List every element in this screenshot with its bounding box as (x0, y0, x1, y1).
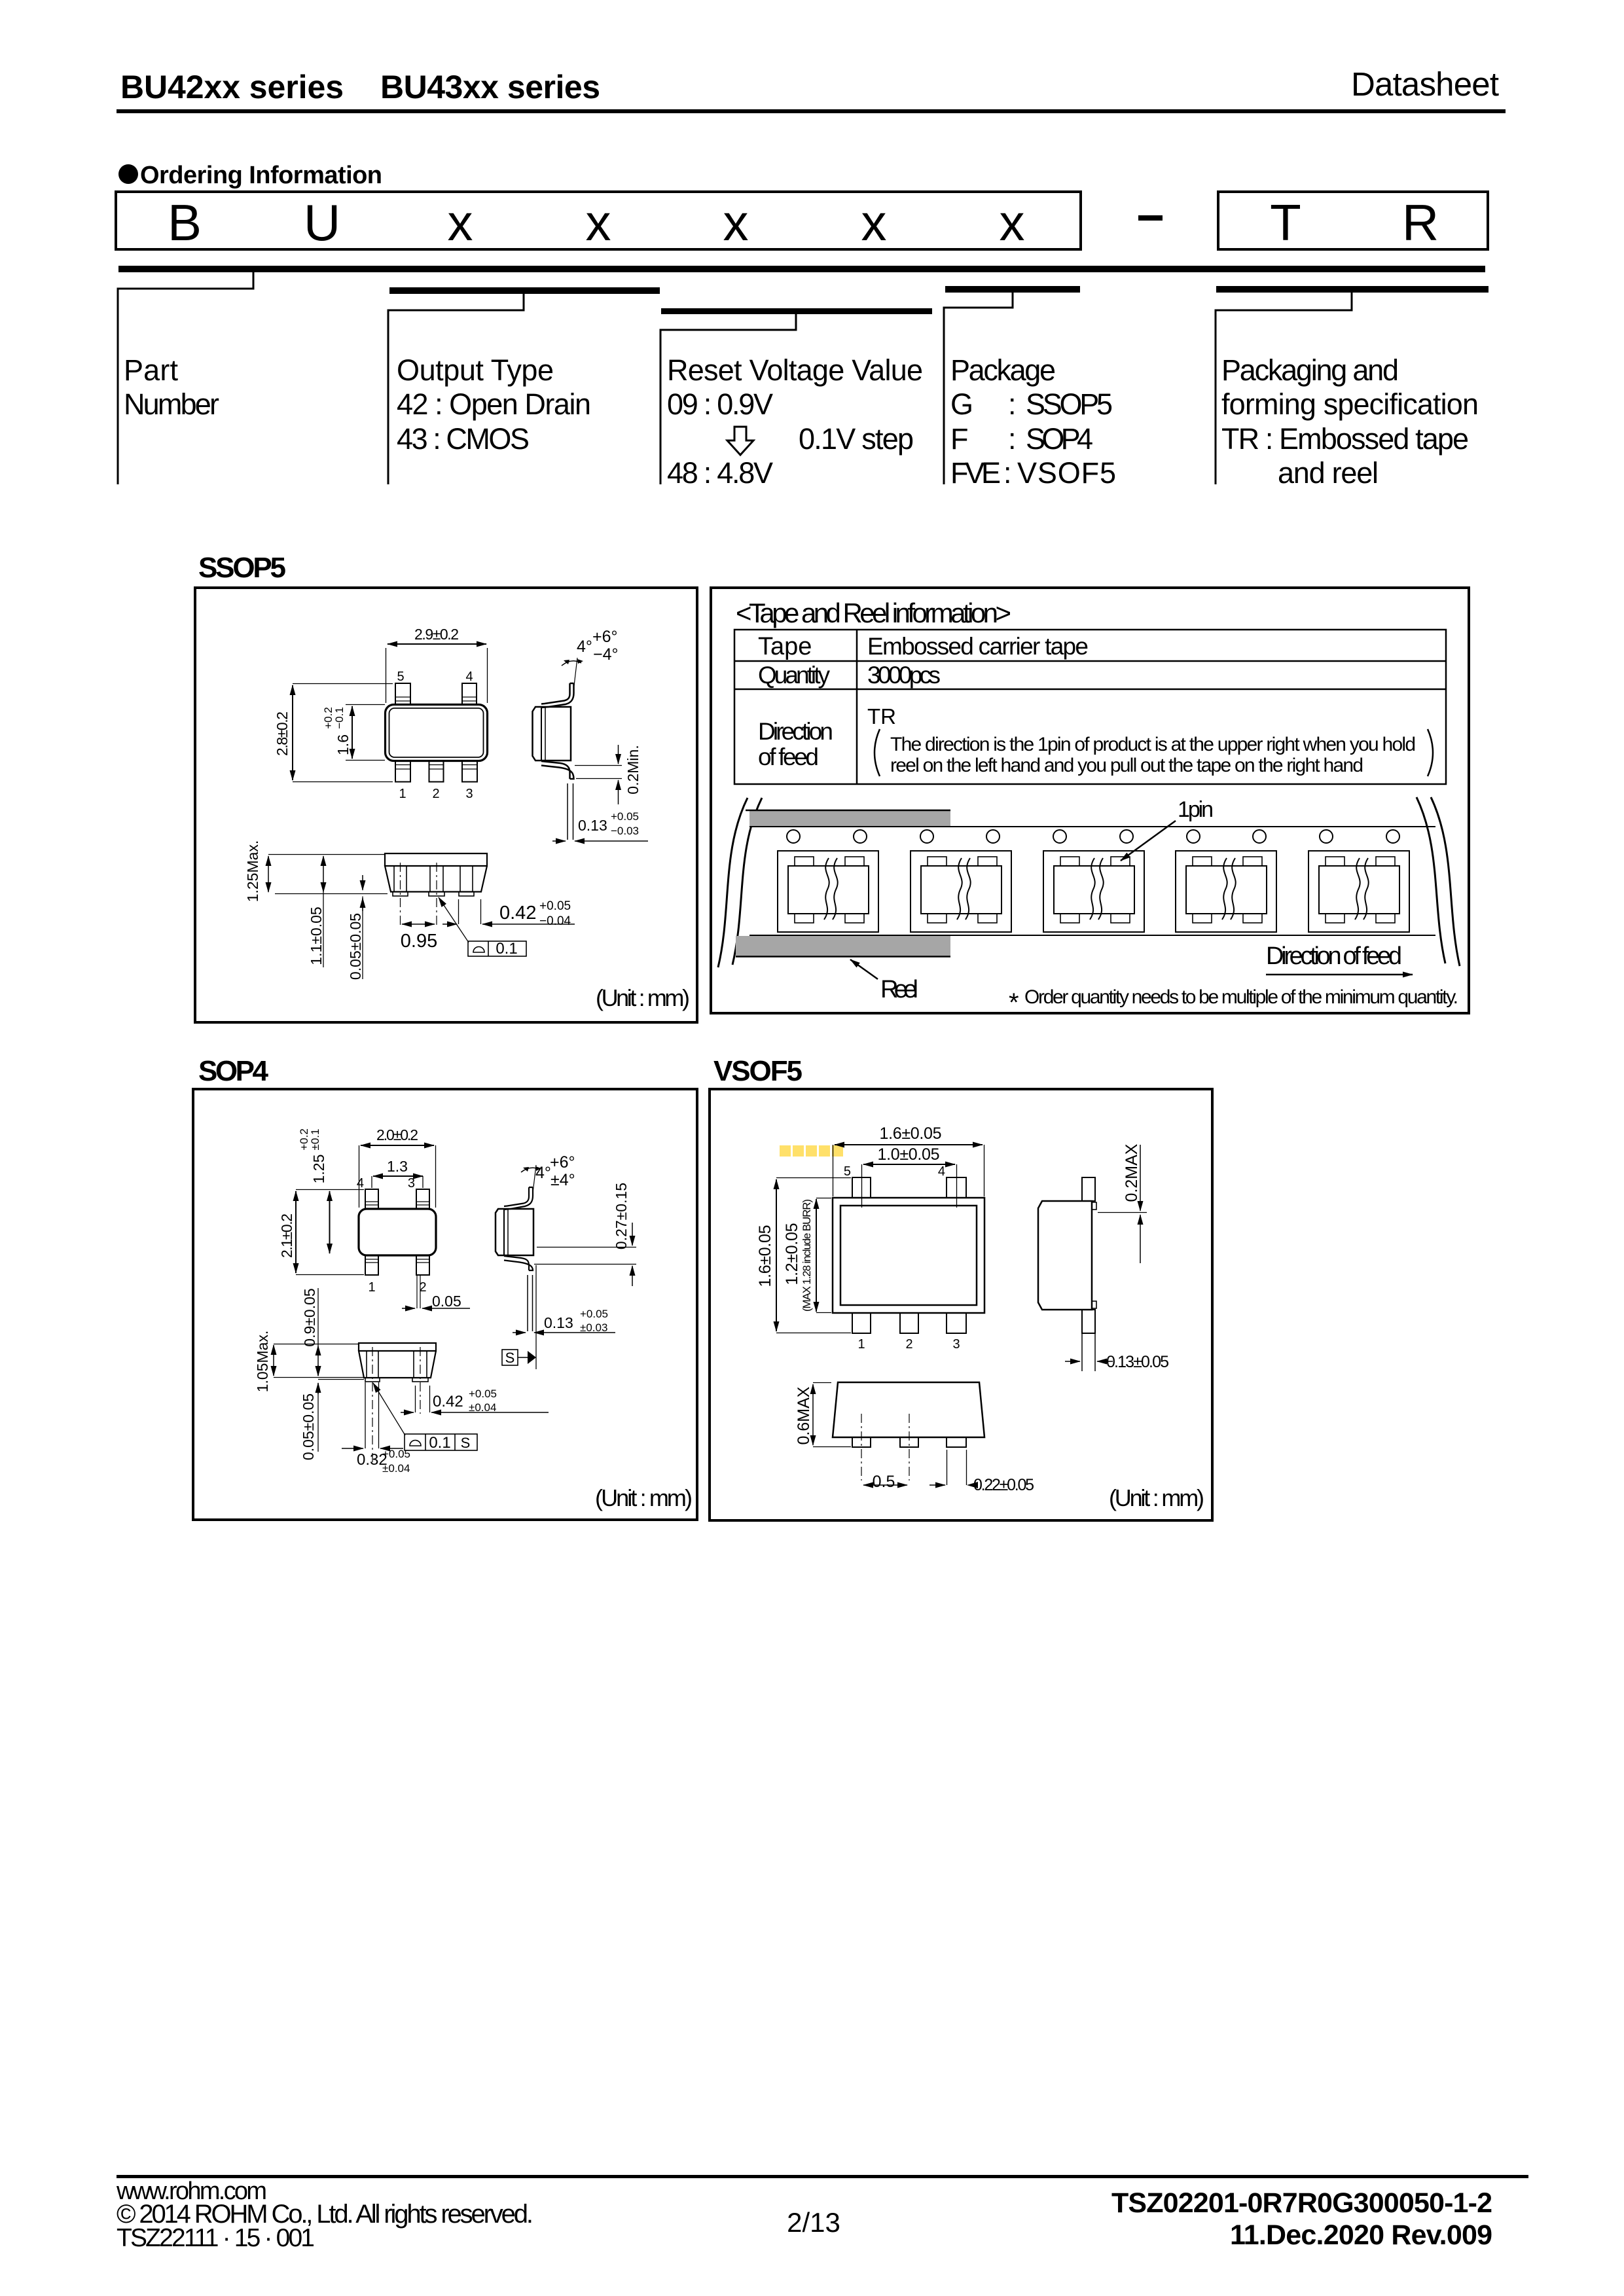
svg-text:Packaging and: Packaging and (1221, 353, 1399, 387)
svg-text:1: 1 (857, 1337, 865, 1352)
svg-text:2/13: 2/13 (787, 2207, 840, 2238)
svg-text:±4°: ±4° (550, 1171, 575, 1189)
svg-text:Quantity: Quantity (758, 662, 831, 689)
svg-text::: : (1003, 456, 1012, 490)
svg-text:0.95: 0.95 (401, 931, 437, 952)
svg-text:0.42: 0.42 (499, 903, 536, 924)
svg-text:2.0±0.2: 2.0±0.2 (376, 1126, 418, 1143)
svg-text:U: U (304, 194, 340, 251)
svg-text:0.05: 0.05 (432, 1293, 461, 1310)
svg-text:0.1: 0.1 (496, 940, 517, 958)
svg-text:TSZ22111 · 15 · 001: TSZ22111 · 15 · 001 (117, 2224, 315, 2252)
svg-text:2: 2 (432, 787, 439, 801)
svg-text:G: G (950, 387, 973, 421)
svg-text:B: B (168, 194, 202, 251)
svg-text:T: T (1270, 194, 1301, 251)
svg-text:of feed: of feed (758, 744, 819, 770)
svg-text:+0.05: +0.05 (539, 899, 571, 913)
svg-text:forming specification: forming specification (1221, 387, 1479, 421)
svg-text:4°: 4° (535, 1164, 551, 1182)
svg-text:+0.05: +0.05 (580, 1308, 608, 1320)
svg-text:Reel: Reel (880, 976, 918, 1003)
svg-text:1: 1 (368, 1280, 375, 1295)
svg-text:43 : CMOS: 43 : CMOS (397, 422, 530, 456)
svg-text:1.0±0.05: 1.0±0.05 (878, 1145, 940, 1164)
svg-text:*: * (1009, 988, 1019, 1017)
svg-text:0.42: 0.42 (433, 1393, 463, 1410)
svg-text:1: 1 (399, 787, 406, 801)
svg-text:09 : 0.9V: 09 : 0.9V (667, 387, 773, 421)
svg-text:Package: Package (950, 353, 1056, 387)
svg-text:3: 3 (465, 787, 473, 801)
svg-text:2.9±0.2: 2.9±0.2 (414, 626, 459, 643)
svg-text:Embossed carrier tape: Embossed carrier tape (867, 633, 1089, 660)
svg-text:x: x (861, 194, 887, 251)
svg-text:0.05±0.05: 0.05±0.05 (300, 1393, 317, 1460)
svg-text:BU43xx series: BU43xx series (380, 69, 600, 105)
svg-text:48 : 4.8V: 48 : 4.8V (667, 456, 773, 490)
svg-text:1pin: 1pin (1178, 797, 1214, 822)
svg-text:TR : Embossed tape: TR : Embossed tape (1221, 422, 1469, 456)
svg-text:4: 4 (465, 670, 473, 684)
svg-text:11.Dec.2020 Rev.009: 11.Dec.2020 Rev.009 (1230, 2219, 1492, 2251)
svg-text:F: F (950, 422, 969, 456)
svg-text:x: x (723, 194, 749, 251)
svg-text:and reel: and reel (1278, 456, 1379, 490)
svg-text:Reset Voltage Value: Reset Voltage Value (667, 353, 923, 387)
svg-text:SSOP5: SSOP5 (198, 552, 286, 584)
svg-text:−4°: −4° (593, 645, 619, 664)
svg-text:x: x (448, 194, 473, 251)
svg-text:SOP4: SOP4 (198, 1055, 269, 1087)
svg-text:VSOF5: VSOF5 (713, 1055, 803, 1087)
svg-text:0.9±0.05: 0.9±0.05 (301, 1288, 318, 1346)
svg-text:−0.03: −0.03 (611, 825, 639, 837)
svg-text:BU42xx series: BU42xx series (120, 69, 344, 105)
svg-text:2.1±0.2: 2.1±0.2 (278, 1213, 295, 1258)
svg-text::: : (1008, 422, 1017, 456)
svg-text:x: x (1000, 194, 1025, 251)
svg-text:1.3: 1.3 (387, 1158, 408, 1175)
svg-text:0.1V step: 0.1V step (799, 422, 914, 456)
svg-text:+6°: +6° (550, 1153, 575, 1172)
svg-text:4: 4 (357, 1176, 364, 1191)
svg-text:0.22±0.05: 0.22±0.05 (973, 1476, 1034, 1494)
svg-text:SOP4: SOP4 (1026, 422, 1093, 456)
svg-text:Part: Part (124, 353, 178, 387)
svg-text:0.2MAX: 0.2MAX (1123, 1143, 1141, 1202)
svg-text:5: 5 (844, 1164, 851, 1179)
svg-text:1.6±0.05: 1.6±0.05 (756, 1225, 774, 1287)
svg-text:±0.03: ±0.03 (580, 1321, 607, 1334)
svg-text:Direction: Direction (758, 718, 833, 745)
svg-text:+6°: +6° (592, 628, 618, 646)
svg-text:−0.1: −0.1 (333, 707, 346, 729)
svg-text:TR: TR (867, 704, 896, 728)
svg-text:x: x (586, 194, 611, 251)
svg-text:Order quantity needs to be mul: Order quantity needs to be multiple of t… (1024, 986, 1458, 1008)
svg-text:S: S (461, 1435, 471, 1451)
svg-text:(MAX 1.28 include BURR): (MAX 1.28 include BURR) (801, 1199, 813, 1312)
svg-text:0.05±0.05: 0.05±0.05 (347, 913, 364, 980)
svg-text:±0.1: ±0.1 (309, 1129, 321, 1151)
svg-text:(Unit : mm): (Unit : mm) (596, 984, 690, 1011)
svg-text:2.8±0.2: 2.8±0.2 (274, 711, 291, 756)
svg-text:4°: 4° (577, 637, 592, 656)
svg-text:FVE: FVE (950, 456, 1001, 490)
svg-text:1.25Max.: 1.25Max. (244, 840, 261, 903)
svg-text:5: 5 (397, 670, 404, 684)
svg-text:1.05Max.: 1.05Max. (254, 1331, 271, 1393)
svg-text:Number: Number (124, 387, 219, 421)
svg-text:Datasheet: Datasheet (1351, 65, 1499, 103)
svg-text:3000pcs: 3000pcs (867, 662, 941, 689)
svg-text:1.6±0.05: 1.6±0.05 (880, 1124, 942, 1143)
svg-text:+0.05: +0.05 (382, 1448, 410, 1460)
svg-text:0.13: 0.13 (544, 1314, 573, 1331)
svg-text:+0.05: +0.05 (611, 810, 639, 823)
svg-text:1.25: 1.25 (310, 1155, 327, 1184)
svg-text:0.27±0.15: 0.27±0.15 (613, 1183, 630, 1249)
svg-text:3: 3 (952, 1337, 960, 1352)
svg-text:4: 4 (938, 1164, 945, 1179)
svg-text:1.1±0.05: 1.1±0.05 (308, 906, 325, 965)
svg-text:TSZ02201-0R7R0G300050-1-2: TSZ02201-0R7R0G300050-1-2 (1111, 2187, 1492, 2219)
svg-text:R: R (1402, 194, 1439, 251)
svg-text:Tape: Tape (758, 633, 812, 660)
svg-text:+0.05: +0.05 (469, 1388, 497, 1400)
svg-text:42 : Open Drain: 42 : Open Drain (397, 387, 591, 421)
svg-text:VSOF5: VSOF5 (1017, 456, 1116, 490)
svg-text:±0.04: ±0.04 (469, 1401, 496, 1414)
svg-text:(Unit : mm): (Unit : mm) (1109, 1484, 1204, 1511)
svg-text::: : (1008, 387, 1017, 421)
svg-text:S: S (505, 1350, 515, 1366)
svg-text:Output Type: Output Type (397, 353, 554, 387)
svg-text:0.13: 0.13 (578, 817, 607, 834)
svg-text:0.13±0.05: 0.13±0.05 (1106, 1353, 1169, 1371)
svg-text:Ordering Information: Ordering Information (140, 162, 382, 189)
svg-text:0.6MAX: 0.6MAX (795, 1386, 813, 1444)
svg-text:−0.04: −0.04 (539, 914, 571, 928)
svg-text:Direction of feed: Direction of feed (1266, 942, 1402, 970)
svg-text:SSOP5: SSOP5 (1026, 387, 1113, 421)
svg-text:1.6: 1.6 (334, 734, 352, 755)
svg-text:0.1: 0.1 (429, 1434, 450, 1452)
svg-text:(Unit : mm): (Unit : mm) (595, 1484, 693, 1511)
svg-text:reel on the left hand and you: reel on the left hand and you pull out t… (890, 755, 1363, 776)
svg-text:2: 2 (905, 1337, 912, 1352)
svg-text:±0.04: ±0.04 (382, 1462, 410, 1475)
svg-text:0.2Min.: 0.2Min. (624, 745, 641, 794)
svg-text:0.5: 0.5 (873, 1473, 895, 1491)
svg-text:3: 3 (408, 1176, 415, 1191)
svg-text:1.2±0.05: 1.2±0.05 (783, 1223, 801, 1285)
svg-text:<Tape and Reel information>: <Tape and Reel information> (736, 598, 1011, 628)
svg-text:The direction is the 1pin of p: The direction is the 1pin of product is … (890, 734, 1416, 755)
